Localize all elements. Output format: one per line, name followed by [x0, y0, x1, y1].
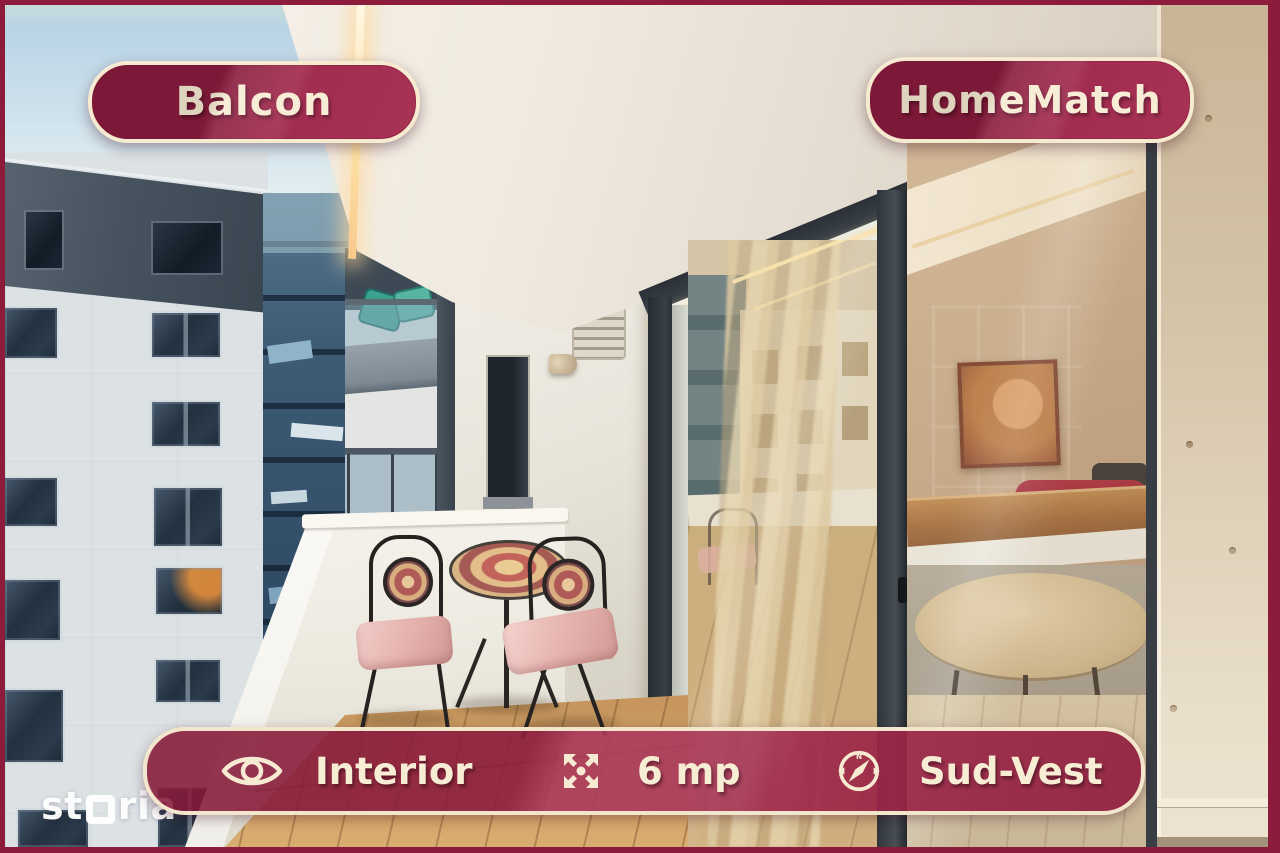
wall-lamp [549, 354, 577, 374]
balcony-photo: stria Interior [5, 5, 1268, 847]
area-label: 6 mp [637, 750, 741, 793]
watermark-prefix: st [41, 784, 83, 828]
building-wing [345, 248, 442, 538]
chair-medallion [383, 557, 433, 607]
building-window [5, 690, 63, 762]
balcony-rail [345, 299, 442, 305]
wall-screw [1205, 115, 1212, 122]
building-window [5, 478, 57, 526]
building-window [152, 313, 220, 357]
reflection-detail [271, 490, 308, 504]
compass-north-label: N [856, 752, 862, 761]
building-window-lit [156, 568, 222, 614]
wall-screw [1186, 441, 1193, 448]
badge-brand: HomeMatch [866, 57, 1194, 143]
badge-brand-label: HomeMatch [898, 78, 1161, 122]
bistro-chair-left [357, 533, 457, 728]
window-side-frame [1146, 90, 1157, 847]
building-window [153, 223, 221, 273]
info-bar: Interior 6 mp [143, 727, 1145, 815]
expand-arrows-icon [557, 747, 605, 795]
chair-cushion [355, 615, 454, 671]
chair-cushion [501, 606, 620, 677]
reflection-detail [267, 340, 313, 364]
wall-screw [1229, 547, 1236, 554]
door-handle [898, 577, 907, 603]
chair-shadow [357, 711, 453, 727]
interior-label: Interior [315, 750, 473, 793]
window-niche [488, 357, 528, 502]
info-item-area: 6 mp [557, 731, 741, 811]
building-window [5, 580, 60, 640]
reflection-detail [263, 193, 350, 253]
niche-sill [483, 497, 533, 509]
wall-screw [1170, 705, 1177, 712]
eye-icon [219, 750, 285, 792]
badge-room-type: Balcon [88, 61, 420, 143]
building-window [5, 308, 57, 358]
balcony-fascia [345, 338, 442, 394]
listing-photo-card: stria Interior [0, 0, 1280, 853]
building-window [156, 660, 220, 702]
info-item-interior: Interior [219, 731, 473, 811]
building-window [26, 212, 62, 268]
building-window [152, 402, 220, 446]
compass-icon: N [835, 747, 883, 795]
orientation-label: Sud-Vest [919, 750, 1103, 793]
floor-shadow-right [1157, 837, 1268, 847]
baseboard [1157, 798, 1268, 807]
badge-room-type-label: Balcon [176, 79, 333, 125]
bistro-chair-right [499, 531, 626, 735]
info-item-orientation: N Sud-Vest [835, 731, 1103, 811]
reflection-detail [290, 423, 343, 441]
square-o-glyph [86, 795, 115, 824]
building-window [154, 488, 222, 546]
